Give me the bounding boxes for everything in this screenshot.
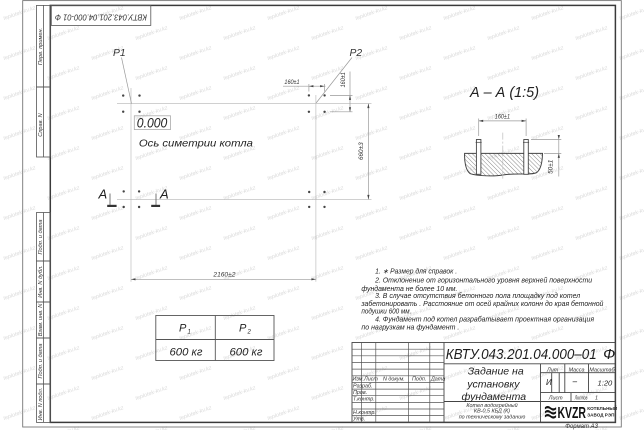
svg-text:N докум.: N докум.	[383, 376, 405, 382]
svg-text:КВТУ.043.201.04.000–01: КВТУ.043.201.04.000–01	[446, 346, 597, 363]
svg-text:Подп. и дата: Подп. и дата	[38, 219, 44, 254]
svg-text:Н.контр.: Н.контр.	[353, 410, 376, 416]
svg-text:КВТУ.043.201.04.000-01 Ф: КВТУ.043.201.04.000-01 Ф	[55, 13, 147, 22]
svg-text:–: –	[572, 377, 578, 386]
svg-text:Пров.: Пров.	[353, 390, 367, 396]
svg-text:160±1: 160±1	[495, 114, 511, 121]
svg-text:Задание на: Задание на	[468, 366, 524, 378]
svg-text:забетонировать . Расстояние от: забетонировать . Расстояние от осей край…	[360, 300, 603, 308]
svg-text:600 кг: 600 кг	[170, 347, 204, 359]
svg-text:50±1: 50±1	[547, 159, 554, 174]
svg-text:4. Фундамент под котел разраба: 4. Фундамент под котел разрабатывает про…	[375, 316, 594, 324]
svg-text:1. ∗ Размер для справок .: 1. ∗ Размер для справок .	[375, 268, 457, 276]
svg-text:Листов: Листов	[574, 395, 587, 401]
svg-text:Взам. инв. N: Взам. инв. N	[38, 303, 44, 337]
svg-text:по нагрузкам на фундамент .: по нагрузкам на фундамент .	[361, 323, 459, 331]
svg-text:P1: P1	[113, 48, 126, 59]
svg-text:фундамента не более 10 мм.: фундамента не более 10 мм.	[361, 285, 457, 293]
svg-text:1: 1	[188, 330, 191, 336]
svg-text:160±1: 160±1	[340, 72, 347, 88]
svg-text:2160±2: 2160±2	[212, 271, 235, 278]
svg-text:1: 1	[595, 395, 598, 401]
svg-text:0.000: 0.000	[137, 116, 168, 131]
svg-text:А: А	[98, 187, 108, 202]
svg-text:Масса: Масса	[569, 367, 585, 373]
svg-text:KVZR: KVZR	[558, 405, 587, 422]
svg-text:Подп. и дата: Подп. и дата	[38, 343, 44, 378]
svg-text:Ф: Ф	[603, 346, 615, 363]
svg-text:подушки 600 мм.: подушки 600 мм.	[361, 308, 411, 316]
svg-text:установку: установку	[466, 378, 520, 390]
svg-text:Изм.Лист: Изм.Лист	[353, 376, 379, 382]
svg-text:1:20: 1:20	[598, 378, 614, 387]
svg-text:Справ. N: Справ. N	[38, 112, 44, 136]
svg-text:Инв. N подл.: Инв. N подл.	[38, 388, 44, 421]
svg-text:2. Отклонение от горизонтально: 2. Отклонение от горизонтального уровня …	[374, 277, 592, 285]
svg-text:160±1: 160±1	[284, 79, 300, 86]
svg-text:Инв. N дубл.: Инв. N дубл.	[38, 265, 44, 297]
svg-text:Лит: Лит	[546, 367, 559, 373]
svg-text:3. В случае отсутствия бетонно: 3. В случае отсутствия бетонного пола пл…	[375, 292, 580, 300]
svg-text:Т.контр.: Т.контр.	[353, 397, 375, 403]
svg-text:Масштаб: Масштаб	[589, 367, 615, 373]
svg-text:А – А (1:5): А – А (1:5)	[469, 85, 539, 101]
svg-text:Ось симетрии котла: Ось симетрии котла	[139, 137, 253, 149]
svg-text:P2: P2	[350, 48, 363, 59]
svg-text:2: 2	[247, 330, 252, 336]
svg-text:660±3: 660±3	[358, 142, 365, 160]
svg-text:600 кг: 600 кг	[230, 347, 264, 359]
svg-text:А: А	[159, 187, 169, 202]
svg-text:P: P	[179, 323, 187, 335]
svg-text:Подп.: Подп.	[412, 376, 426, 382]
svg-text:Формат А3: Формат А3	[565, 424, 598, 430]
svg-text:И: И	[546, 378, 552, 387]
svg-text:Разраб.: Разраб.	[353, 383, 373, 389]
svg-text:КОТЕЛЬНЫЙ: КОТЕЛЬНЫЙ	[587, 404, 617, 411]
svg-text:Перв. примен.: Перв. примен.	[38, 28, 44, 65]
svg-text:ЗАВОД РЭП: ЗАВОД РЭП	[587, 412, 614, 417]
svg-text:фундамента: фундамента	[462, 391, 527, 403]
svg-text:Дата: Дата	[430, 376, 445, 382]
svg-text:Лист: Лист	[548, 395, 563, 401]
svg-text:P: P	[239, 323, 247, 335]
svg-text:по техническому заданию: по техническому заданию	[459, 415, 526, 421]
svg-text:Утв.: Утв.	[352, 416, 365, 422]
